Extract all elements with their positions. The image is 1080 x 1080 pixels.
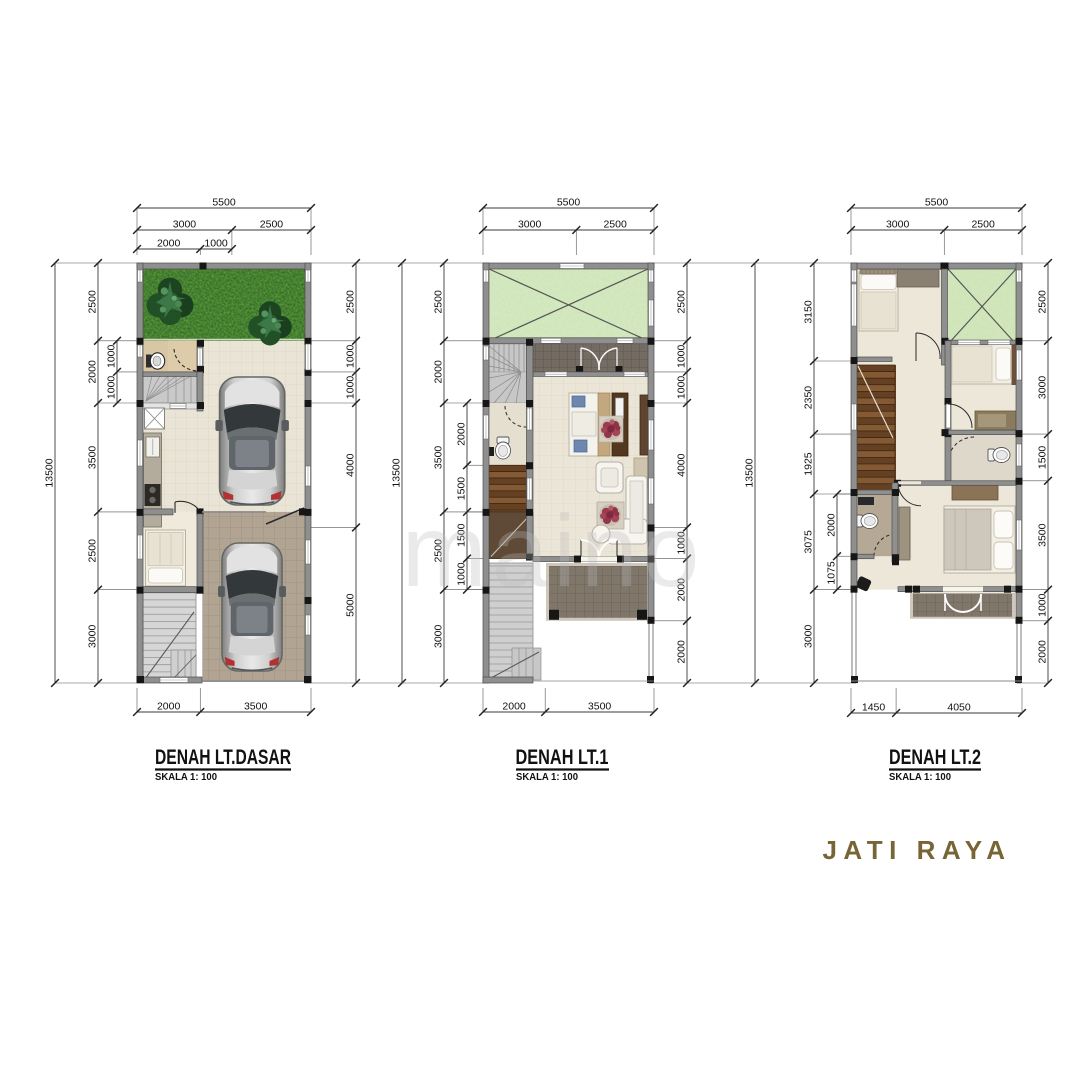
svg-text:3500: 3500 xyxy=(588,701,612,713)
svg-text:1000: 1000 xyxy=(676,376,688,400)
svg-text:2350: 2350 xyxy=(803,386,815,410)
svg-text:2500: 2500 xyxy=(345,290,357,314)
svg-text:1000: 1000 xyxy=(345,344,357,368)
svg-text:13500: 13500 xyxy=(44,458,56,487)
svg-text:2500: 2500 xyxy=(676,290,688,314)
svg-text:5000: 5000 xyxy=(345,593,357,617)
svg-text:2000: 2000 xyxy=(502,701,526,713)
svg-text:1500: 1500 xyxy=(1037,446,1049,470)
svg-text:3500: 3500 xyxy=(1037,523,1049,547)
svg-text:3000: 3000 xyxy=(87,624,99,648)
svg-text:1000: 1000 xyxy=(1037,593,1049,617)
svg-text:2500: 2500 xyxy=(1037,290,1049,314)
svg-text:2000: 2000 xyxy=(433,360,445,384)
svg-text:3000: 3000 xyxy=(886,219,910,231)
svg-text:3150: 3150 xyxy=(803,300,815,324)
svg-text:SKALA 1: 100: SKALA 1: 100 xyxy=(516,772,578,783)
svg-text:DENAH LT.DASAR: DENAH LT.DASAR xyxy=(155,746,291,769)
svg-text:13500: 13500 xyxy=(391,458,403,487)
svg-text:2000: 2000 xyxy=(87,360,99,384)
svg-text:DENAH LT.1: DENAH LT.1 xyxy=(516,746,609,769)
svg-text:2000: 2000 xyxy=(826,513,838,537)
svg-text:2500: 2500 xyxy=(433,290,445,314)
svg-text:3000: 3000 xyxy=(433,624,445,648)
svg-text:2500: 2500 xyxy=(87,539,99,563)
svg-text:2500: 2500 xyxy=(971,219,995,231)
svg-text:4050: 4050 xyxy=(947,702,971,714)
svg-text:1000: 1000 xyxy=(676,344,688,368)
svg-text:1450: 1450 xyxy=(862,702,886,714)
svg-text:JATI RAYA: JATI RAYA xyxy=(822,835,1011,865)
svg-text:3075: 3075 xyxy=(803,530,815,554)
svg-text:2500: 2500 xyxy=(260,219,284,231)
svg-text:2000: 2000 xyxy=(157,701,181,713)
svg-text:5500: 5500 xyxy=(212,197,236,209)
svg-text:SKALA 1: 100: SKALA 1: 100 xyxy=(155,772,217,783)
svg-text:2000: 2000 xyxy=(456,422,468,446)
svg-text:2500: 2500 xyxy=(603,219,627,231)
svg-text:1000: 1000 xyxy=(106,344,118,368)
svg-text:13500: 13500 xyxy=(744,458,756,487)
svg-text:1000: 1000 xyxy=(345,376,357,400)
svg-text:2000: 2000 xyxy=(676,640,688,664)
svg-text:1925: 1925 xyxy=(803,452,815,476)
svg-text:3000: 3000 xyxy=(173,219,197,231)
svg-text:3500: 3500 xyxy=(87,446,99,470)
svg-text:3500: 3500 xyxy=(433,446,445,470)
svg-text:2500: 2500 xyxy=(87,290,99,314)
svg-text:1075: 1075 xyxy=(826,561,838,585)
svg-text:SKALA 1: 100: SKALA 1: 100 xyxy=(889,772,951,783)
svg-text:3000: 3000 xyxy=(518,219,542,231)
svg-text:5500: 5500 xyxy=(925,197,949,209)
svg-text:2000: 2000 xyxy=(157,238,181,250)
svg-text:1000: 1000 xyxy=(106,376,118,400)
svg-text:3500: 3500 xyxy=(244,701,268,713)
svg-text:3000: 3000 xyxy=(803,624,815,648)
svg-text:5500: 5500 xyxy=(557,197,581,209)
svg-text:4000: 4000 xyxy=(345,453,357,477)
svg-text:3000: 3000 xyxy=(1037,376,1049,400)
svg-text:maino: maino xyxy=(402,494,705,608)
svg-text:2000: 2000 xyxy=(1037,640,1049,664)
svg-text:1000: 1000 xyxy=(204,238,228,250)
svg-text:4000: 4000 xyxy=(676,453,688,477)
svg-text:DENAH LT.2: DENAH LT.2 xyxy=(889,746,981,769)
